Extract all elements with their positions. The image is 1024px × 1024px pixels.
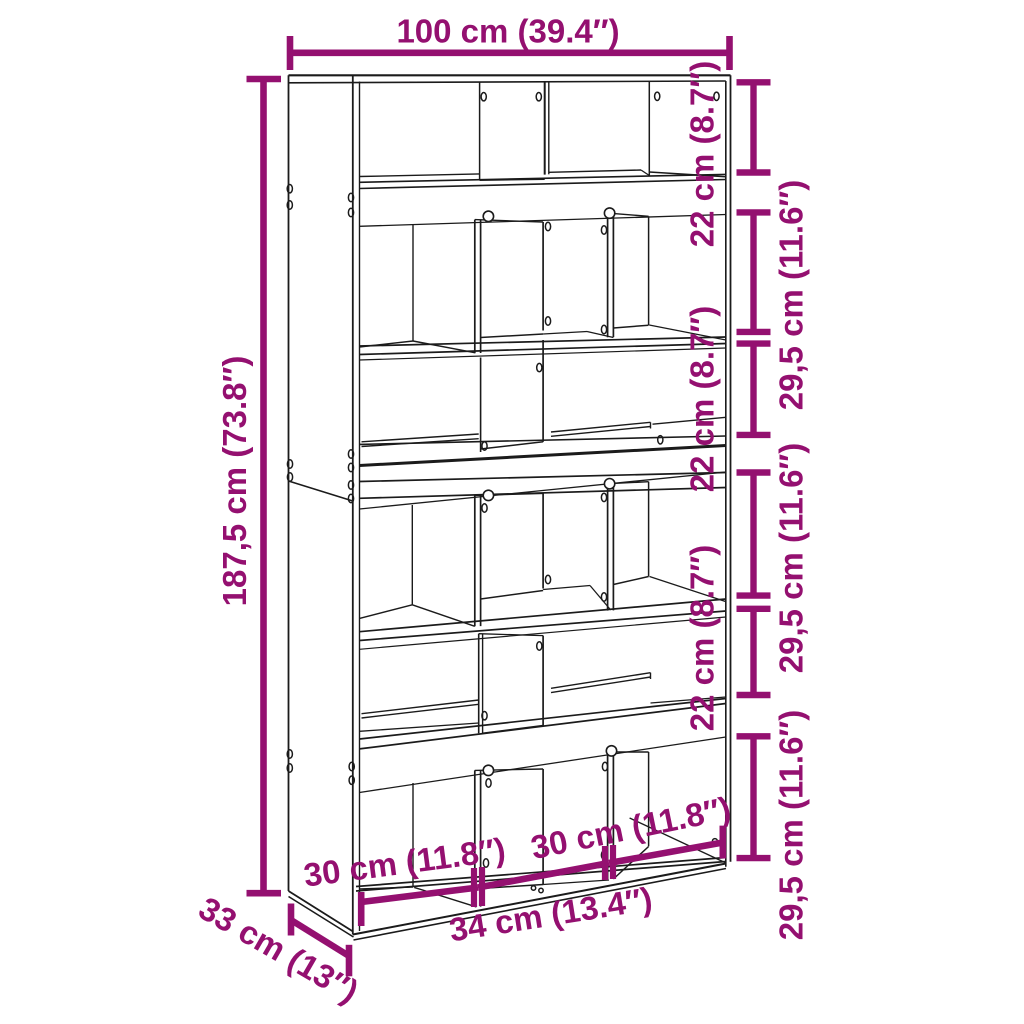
svg-text:22 cm (8.7″): 22 cm (8.7″) <box>684 306 721 492</box>
svg-text:22 cm (8.7″): 22 cm (8.7″) <box>684 61 721 247</box>
svg-text:187,5 cm (73.8″): 187,5 cm (73.8″) <box>216 356 253 607</box>
svg-text:29,5 cm (11.6″): 29,5 cm (11.6″) <box>772 180 809 410</box>
svg-text:22 cm (8.7″): 22 cm (8.7″) <box>684 545 721 731</box>
svg-text:29,5 cm (11.6″): 29,5 cm (11.6″) <box>772 443 809 673</box>
svg-text:100 cm (39.4″): 100 cm (39.4″) <box>396 13 619 50</box>
svg-text:29,5 cm (11.6″): 29,5 cm (11.6″) <box>772 710 809 940</box>
